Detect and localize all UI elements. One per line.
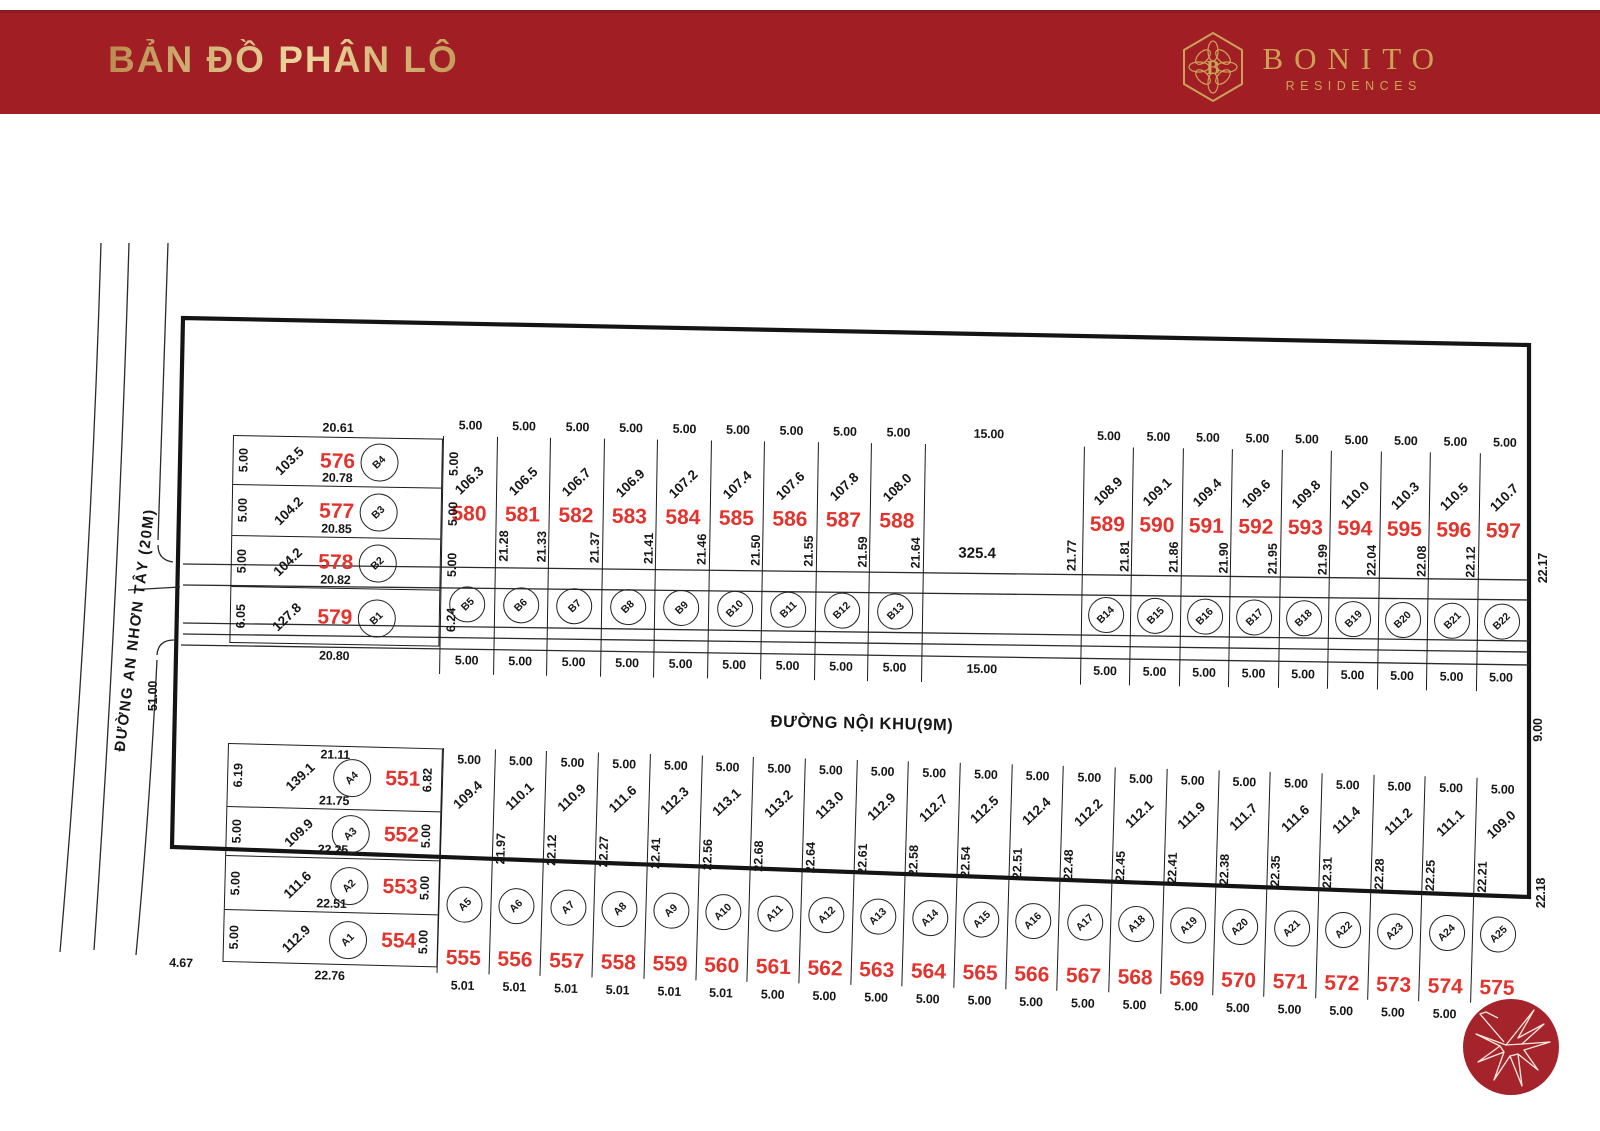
lot-top-width: 5.00 — [780, 424, 804, 438]
lot-code: A10 — [712, 901, 734, 923]
lot-depth-left: 22.58 — [906, 845, 921, 877]
lot-number: 554 — [381, 928, 417, 953]
lot-top-width: 5.00 — [1344, 433, 1368, 447]
lot-bottom-width: 5.00 — [916, 992, 940, 1007]
lot-code: B1 — [367, 609, 385, 627]
lot-depth-right: 21.64 — [909, 537, 924, 569]
lots-589-597: 5.00108.958921.81B145.005.00109.159021.8… — [1079, 447, 1528, 692]
lot-row: 21.116.19139.1551A46.8221.75 — [227, 744, 442, 812]
lot-number: 572 — [1324, 971, 1360, 996]
lot-depth-left: 22.64 — [803, 842, 818, 874]
lot-code: A11 — [764, 903, 786, 925]
lot-left-dim: 5.00 — [229, 819, 244, 844]
lot-bottom-width: 5.00 — [615, 656, 639, 670]
lot-strip: 5.00108.058821.64B135.00 — [867, 443, 924, 682]
lot-code: A16 — [1022, 910, 1044, 932]
lot-code: A15 — [971, 909, 993, 931]
lot-left-dim: 6.05 — [234, 603, 248, 628]
lot-right-dim: 5.00 — [417, 875, 432, 900]
lot-number: 585 — [719, 507, 754, 532]
lot-number: 567 — [1066, 964, 1102, 989]
lot-code-circle: A22 — [1325, 911, 1362, 948]
lot-strip: 5.00108.958921.81B145.00 — [1079, 447, 1132, 686]
lot-area: 103.5 — [272, 444, 307, 478]
lot-top-width: 5.00 — [819, 763, 843, 778]
lot-top-width: 5.00 — [1387, 779, 1411, 794]
lot-code: B20 — [1392, 609, 1414, 631]
lot-code-circle: A7 — [550, 889, 587, 926]
lot-bottom-width: 5.00 — [1226, 1001, 1250, 1016]
lot-depth-right: 21.46 — [695, 534, 710, 566]
big-lot-bottom-width: 15.00 — [966, 662, 997, 677]
lot-bottom-dim: 20.80 — [319, 649, 350, 664]
lot-code: B10 — [724, 598, 746, 620]
lot-strip: 5.00106.758221.37B75.00 — [546, 438, 603, 677]
lot-number: 596 — [1436, 518, 1471, 543]
lot-depth-right: 21.59 — [855, 536, 870, 568]
lot-top-width: 5.00 — [1097, 429, 1121, 443]
lot-code-circle: B7 — [556, 588, 593, 625]
lot-top-width: 5.00 — [612, 757, 636, 772]
lot-right-dim: 6.24 — [444, 607, 458, 632]
lot-bottom-dim: 22.25 — [318, 842, 349, 857]
lot-bottom-dim: 22.76 — [314, 968, 345, 983]
lot-code: B19 — [1342, 608, 1364, 630]
lot-code: A20 — [1229, 916, 1251, 938]
lot-top-width: 5.00 — [1443, 435, 1467, 449]
big-lot-area: 325.4 — [958, 545, 996, 563]
lot-code: B11 — [778, 599, 800, 621]
lot-area: 109.0 — [1484, 807, 1519, 841]
lot-strip: 5.00112.256722.48A175.00 — [1057, 766, 1115, 992]
lot-number: 590 — [1139, 514, 1174, 539]
lot-bottom-width: 5.00 — [761, 987, 785, 1002]
lot-code-circle: A23 — [1377, 913, 1414, 950]
lot-bottom-width: 5.00 — [669, 657, 693, 671]
brand-name: BONITO — [1262, 41, 1445, 77]
lot-code: A6 — [508, 897, 526, 915]
lot-code-circle: A13 — [860, 898, 897, 935]
lot-bottom-width: 5.01 — [709, 986, 733, 1001]
lot-area: 112.2 — [1071, 796, 1105, 830]
lot-depth-right: 22.12 — [1464, 546, 1479, 578]
lot-number: 583 — [612, 505, 647, 530]
lot-top-width: 5.00 — [922, 766, 946, 781]
lot-area: 110.3 — [1388, 479, 1422, 513]
lot-area: 111.6 — [606, 783, 640, 816]
lot-bottom-width: 5.00 — [883, 660, 907, 674]
lot-bottom-width: 5.00 — [562, 655, 586, 669]
lot-top-width: 5.00 — [974, 767, 998, 782]
lot-strip: 5.00112.556522.54A155.00 — [953, 763, 1011, 989]
lot-code-circle: B4 — [360, 443, 399, 482]
lot-bottom-width: 5.00 — [776, 659, 800, 673]
lot-strip: 5.00110.559622.12B215.00 — [1426, 452, 1479, 691]
lot-code-circle: A21 — [1273, 910, 1310, 947]
lot-top-width: 5.00 — [457, 752, 481, 767]
lot-top-width: 5.00 — [1026, 769, 1050, 784]
lot-bottom-width: 5.00 — [967, 993, 991, 1008]
lot-area: 111.4 — [1330, 804, 1364, 837]
lot-depth-right: 21.55 — [802, 535, 817, 567]
lot-depth-left: 22.48 — [1062, 849, 1077, 881]
subdivision-map: 5.00106.3580B55.005.00106.558121.2821.33… — [0, 112, 1600, 1131]
lot-strip: 5.00110.955722.12A75.01 — [540, 751, 598, 977]
lot-code: B5 — [458, 595, 476, 613]
lot-number: 592 — [1238, 515, 1273, 540]
lot-area: 111.9 — [1175, 799, 1209, 832]
lot-strip: 5.00111.657122.35A215.00 — [1263, 772, 1321, 998]
lot-number: 581 — [505, 503, 540, 528]
lot-code-circle: B13 — [877, 593, 914, 630]
lot-area: 113.1 — [709, 785, 743, 819]
lot-code: B8 — [619, 598, 637, 616]
lot-number: 582 — [558, 504, 593, 529]
lot-area: 110.7 — [1487, 481, 1521, 515]
lot-code: A8 — [611, 900, 629, 918]
lot-code-circle: A14 — [911, 900, 948, 937]
lot-depth-left: 22.41 — [648, 837, 663, 869]
lot-code: A1 — [339, 931, 357, 949]
lot-number: 573 — [1376, 973, 1412, 998]
lot-code: B21 — [1441, 610, 1463, 632]
lot-bottom-dim: 20.85 — [321, 522, 352, 537]
lot-bottom-width: 5.00 — [722, 658, 746, 672]
lot-left-dim: 5.00 — [235, 549, 249, 574]
lot-code: B9 — [672, 599, 690, 617]
lots-551-554: 21.116.19139.1551A46.8221.755.00109.9552… — [222, 743, 442, 967]
lot-depth-left: 22.28 — [1372, 858, 1387, 890]
lot-number: 584 — [665, 506, 700, 531]
lot-code: B14 — [1095, 604, 1117, 626]
lot-area: 113.2 — [761, 787, 795, 821]
lot-strip: 5.00112.756422.58A145.00 — [902, 761, 960, 987]
lot-number: 588 — [879, 509, 914, 534]
lot-code: B4 — [370, 454, 388, 472]
lot-top-width: 5.00 — [1196, 430, 1220, 444]
lot-bottom-width: 5.01 — [554, 981, 578, 996]
lot-number: 577 — [319, 500, 354, 525]
lot-bottom-dim: 21.75 — [319, 793, 350, 808]
lot-bottom-width: 5.00 — [1291, 667, 1315, 681]
lot-row: 5.00104.2578B25.0020.82 — [231, 536, 440, 591]
lot-number: 551 — [385, 767, 421, 792]
lot-area: 107.2 — [666, 467, 701, 501]
lot-top-width: 5.00 — [1232, 775, 1256, 790]
lot-top-width: 5.00 — [673, 422, 697, 436]
lot-number: 565 — [962, 961, 998, 986]
lot-number: 558 — [600, 951, 636, 976]
lot-code: A12 — [815, 904, 837, 926]
lot-strip: 5.00109.659221.95B175.00 — [1228, 449, 1281, 688]
lot-area: 108.0 — [880, 470, 915, 504]
lot-depth-right: 21.99 — [1315, 544, 1330, 576]
lot-area: 111.2 — [1381, 805, 1415, 838]
lot-depth-left: 22.35 — [1268, 855, 1283, 887]
lot-top-width: 5.00 — [1394, 434, 1418, 448]
lot-number: 552 — [384, 823, 420, 848]
lot-code: A3 — [341, 825, 359, 843]
lot-strip: 5.00111.757022.38A205.00 — [1212, 770, 1270, 996]
lot-code: B12 — [831, 600, 853, 622]
lot-depth-left: 22.12 — [545, 834, 560, 866]
lot-number: 563 — [859, 958, 895, 983]
lot-code: A21 — [1281, 918, 1303, 940]
lot-bottom-width: 5.00 — [1341, 668, 1365, 682]
lot-depth-right: 21.41 — [641, 533, 656, 565]
lot-row: 5.00103.5576B45.0020.78 — [233, 436, 442, 489]
lot-strip: 5.00111.956922.41A195.00 — [1160, 769, 1218, 995]
lot-code-circle: B9 — [663, 590, 700, 627]
lot-number: 562 — [807, 957, 843, 982]
lot-bottom-width: 5.01 — [657, 984, 681, 999]
lot-bottom-width: 5.00 — [1174, 999, 1198, 1014]
lot-code-circle: A10 — [705, 894, 742, 931]
lot-depth-left: 21.97 — [493, 833, 508, 865]
lot-area: 111.6 — [1278, 802, 1312, 835]
lot-number: 555 — [445, 946, 481, 971]
lot-depth-right: 21.95 — [1266, 543, 1281, 575]
left-road-lines — [60, 243, 180, 955]
lot-bottom-width: 5.00 — [1381, 1005, 1405, 1020]
lot-strip: 5.00110.059422.04B195.00 — [1327, 451, 1380, 690]
lot-top-width: 5.00 — [1146, 430, 1170, 444]
lot-code: A25 — [1487, 923, 1509, 945]
brand-hexagon-icon: B — [1180, 30, 1246, 104]
lot-area: 109.1 — [1140, 475, 1175, 509]
lot-top-width: 5.00 — [664, 758, 688, 773]
lot-bottom-width: 5.00 — [1329, 1004, 1353, 1019]
block-b-strip-row: 5.00106.3580B55.005.00106.558121.2821.33… — [439, 436, 1529, 692]
lot-top-width: 5.00 — [1181, 773, 1205, 788]
lot-area: 127.8 — [270, 599, 305, 633]
lot-depth-left: 22.45 — [1113, 851, 1128, 883]
lot-strip: 5.00111.655822.27A85.01 — [592, 752, 650, 978]
lot-code-circle: B2 — [358, 544, 397, 583]
lot-number: 593 — [1288, 516, 1323, 541]
lot-code-circle: B12 — [824, 592, 861, 629]
lot-top-width: 5.00 — [886, 425, 910, 439]
lot-depth-right: 21.86 — [1167, 541, 1182, 573]
lot-bottom-width: 5.00 — [829, 659, 853, 673]
lot-area: 139.1 — [283, 760, 318, 794]
lot-code-circle: A20 — [1222, 909, 1259, 946]
compass-icon — [1446, 982, 1576, 1112]
lot-code-circle: A19 — [1170, 907, 1207, 944]
dim-right-bottom-depth: 22.18 — [1534, 878, 1548, 908]
lot-code: A2 — [340, 877, 358, 895]
lot-strip: 5.00111.157422.25A245.00 — [1418, 776, 1476, 1002]
lot-number: 579 — [317, 605, 352, 630]
lot-bottom-width: 5.00 — [1019, 995, 1043, 1010]
lots-555-575: 5.00109.4555A55.015.00110.155621.97A65.0… — [437, 748, 1529, 1004]
header-bar: BẢN ĐỒ PHÂN LÔ B BONITO RESIDENCES — [0, 10, 1600, 114]
lot-top-width: 5.00 — [1077, 770, 1101, 785]
lot-code-circle: A24 — [1428, 914, 1465, 951]
lot-code: A18 — [1126, 913, 1148, 935]
lot-top-width: 5.00 — [726, 423, 750, 437]
lot-strip: 5.00109.057522.21A255.00 — [1470, 778, 1528, 1004]
lot-strip: 5.00112.456622.51A165.00 — [1005, 764, 1063, 990]
lot-number: 561 — [756, 955, 792, 980]
lot-bottom-width: 5.00 — [1489, 670, 1513, 684]
lot-top-width: 5.00 — [619, 421, 643, 435]
lot-area: 112.3 — [658, 784, 692, 818]
lot-bottom-width: 5.00 — [1192, 665, 1216, 679]
lot-strip: 5.00112.156822.45A185.00 — [1108, 767, 1166, 993]
lot-code-circle: A4 — [332, 759, 371, 798]
lot-number: 591 — [1189, 514, 1224, 539]
lot-bottom-width: 5.01 — [606, 983, 630, 998]
lot-code-circle: A25 — [1480, 916, 1517, 953]
lot-code-circle: A9 — [653, 892, 690, 929]
lot-code: A13 — [867, 906, 889, 928]
lot-strip: 5.00109.4555A55.01 — [437, 748, 495, 974]
lot-right-dim: 5.00 — [416, 929, 431, 954]
lot-code-circle: A18 — [1118, 906, 1155, 943]
lot-code: A9 — [663, 902, 681, 920]
lot-right-dim: 5.00 — [418, 824, 433, 849]
lot-code-circle: A15 — [963, 901, 1000, 938]
lot-bottom-width: 5.00 — [455, 653, 479, 667]
lot-depth-right: 21.33 — [534, 531, 549, 563]
lot-depth-left: 22.31 — [1320, 857, 1335, 889]
lot-top-width: 5.00 — [1295, 432, 1319, 446]
lot-strip: 5.00107.658621.55B115.00 — [760, 441, 817, 680]
lot-code-circle: A17 — [1067, 904, 1104, 941]
lot-depth-left: 21.28 — [496, 530, 511, 562]
lot-code: B22 — [1491, 611, 1513, 633]
dim-bottom-left: 4.67 — [169, 956, 193, 971]
lot-area: 112.4 — [1019, 794, 1053, 828]
lot-strip: 5.00107.458521.50B105.00 — [707, 440, 764, 679]
lot-area: 111.7 — [1226, 801, 1260, 834]
lot-code-circle: B10 — [717, 591, 754, 628]
lot-code: A17 — [1074, 912, 1096, 934]
lot-right-dim: 5.00 — [445, 553, 459, 578]
lot-code: A19 — [1177, 915, 1199, 937]
lot-bottom-width: 5.01 — [451, 978, 475, 993]
lot-code-circle: B8 — [610, 589, 647, 626]
lot-area: 112.5 — [968, 793, 1002, 827]
lot-top-width: 5.00 — [1284, 776, 1308, 791]
lot-depth-left: 22.56 — [700, 839, 715, 871]
lot-area: 110.5 — [1437, 480, 1471, 514]
lot-code-circle: B21 — [1434, 602, 1471, 639]
lot-number: 560 — [704, 954, 740, 979]
lot-depth-right: 21.90 — [1216, 542, 1231, 574]
lot-number: 568 — [1117, 966, 1153, 991]
lot-depth-right: 21.81 — [1117, 541, 1132, 573]
lot-number: 586 — [772, 507, 807, 532]
brand-logo: B BONITO RESIDENCES — [1180, 30, 1445, 104]
lot-top-width: 5.00 — [715, 760, 739, 775]
lot-area: 107.6 — [773, 469, 808, 503]
lot-right-dim: 5.00 — [445, 502, 459, 527]
lot-area: 112.9 — [279, 921, 313, 955]
lot-area: 107.4 — [720, 468, 755, 502]
lot-code: B15 — [1144, 605, 1166, 627]
page-title: BẢN ĐỒ PHÂN LÔ — [108, 39, 459, 81]
lot-bottom-width: 5.00 — [864, 990, 888, 1005]
lot-number: 578 — [318, 551, 353, 576]
lot-area: 112.7 — [916, 791, 950, 825]
big-lot-top-width: 15.00 — [974, 427, 1005, 442]
lot-strip: 5.00110.7597B225.00 — [1475, 453, 1528, 692]
lot-area: 109.9 — [282, 816, 317, 850]
lot-code-circle: B22 — [1484, 603, 1521, 640]
lot-top-width: 5.00 — [509, 754, 533, 769]
lot-strip: 5.00107.858721.59B125.00 — [814, 442, 871, 681]
lot-code-circle: B11 — [770, 591, 807, 628]
lot-top-width: 5.00 — [566, 420, 590, 434]
lot-code: B18 — [1293, 607, 1315, 629]
lot-code: A23 — [1384, 921, 1406, 943]
lot-code-circle: A6 — [498, 888, 535, 925]
lot-code-circle: A16 — [1015, 903, 1052, 940]
lot-code: A24 — [1436, 922, 1458, 944]
lot-code-circle: B17 — [1236, 599, 1273, 636]
lot-code: A4 — [343, 769, 361, 787]
lot-area: 107.8 — [827, 470, 862, 504]
lot-code: B16 — [1194, 606, 1216, 628]
lot-strip: 5.00113.256122.68A115.00 — [747, 757, 805, 983]
lot-code: B2 — [368, 555, 386, 573]
lot-bottom-width: 5.00 — [1071, 996, 1095, 1011]
lot-right-dim: 5.00 — [446, 452, 460, 477]
lot-number: 559 — [652, 952, 688, 977]
lot-area: 112.1 — [1123, 797, 1157, 831]
lot-left-dim: 5.00 — [236, 448, 250, 473]
lot-code-circle: A5 — [446, 886, 483, 923]
lot-depth-left: 22.54 — [958, 846, 973, 878]
lot-strip: 5.00113.056222.64A125.00 — [798, 758, 856, 984]
lot-number: 594 — [1337, 517, 1372, 542]
lot-row: 6.05127.8579B16.2420.80 — [230, 587, 439, 648]
lot-strip: 5.00106.558121.2821.33B65.00 — [493, 437, 550, 676]
lot-strip: 5.00109.159021.86B155.00 — [1129, 447, 1182, 686]
big-lot-depth-right: 21.77 — [1065, 540, 1080, 572]
lot-area: 111.1 — [1433, 806, 1467, 839]
lot-strip: 5.00112.355922.41A95.01 — [643, 754, 701, 980]
lot-depth-left: 22.25 — [1423, 860, 1438, 892]
lot-code-circle: A8 — [601, 891, 638, 928]
lot-bottom-dim: 20.82 — [320, 573, 351, 588]
lot-code-circle: B20 — [1385, 602, 1422, 639]
lot-325: 15.00 325.4 21.77 15.00 — [920, 444, 1083, 685]
lot-strip: 5.00110.359522.08B205.00 — [1376, 452, 1429, 691]
lot-top-width: 5.00 — [1245, 431, 1269, 445]
lot-area: 111.6 — [281, 868, 315, 901]
lot-bottom-dim: 20.78 — [322, 471, 353, 486]
lot-code: B17 — [1243, 606, 1265, 628]
lot-strip: 5.00112.956322.61A135.00 — [850, 760, 908, 986]
lot-row: 5.00104.2577B35.0020.85 — [232, 485, 441, 540]
lot-depth-left: 22.51 — [1010, 848, 1025, 880]
lot-number: 589 — [1090, 513, 1125, 538]
lot-area: 110.9 — [554, 781, 588, 815]
lot-strip: 5.00106.958321.41B85.00 — [600, 439, 657, 678]
lot-code-circle: A11 — [756, 895, 793, 932]
lot-code: A22 — [1332, 919, 1354, 941]
lot-area: 108.9 — [1091, 474, 1126, 508]
lot-number: 595 — [1387, 518, 1422, 543]
lot-left-dim: 5.00 — [228, 870, 243, 895]
lot-number: 570 — [1221, 969, 1257, 994]
lot-top-width: 5.00 — [512, 419, 536, 433]
lot-row: 5.00111.6553A25.0022.51 — [225, 856, 439, 915]
lot-area: 109.4 — [1190, 476, 1225, 510]
